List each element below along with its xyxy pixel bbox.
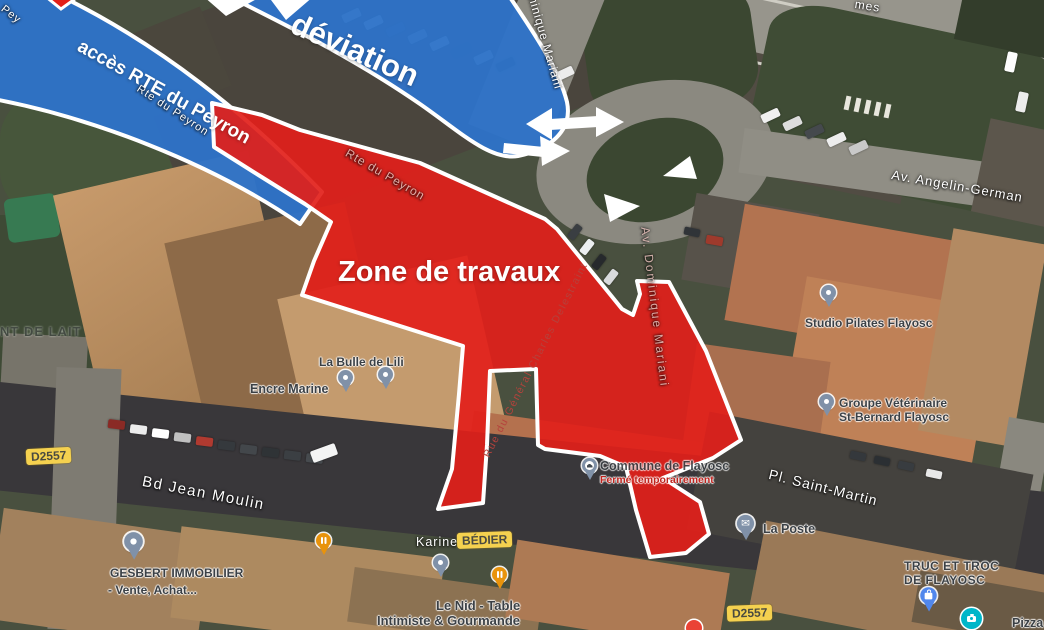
poi-pin-studio-pilates[interactable] xyxy=(821,285,836,300)
pin-dot-icon xyxy=(824,399,829,404)
envelope-icon: ✉ xyxy=(741,518,750,528)
poi-label-truc-et-troc-line2[interactable]: DE FLAYOSC xyxy=(904,573,985,587)
poi-label-le-nid-line1[interactable]: Le Nid - Table xyxy=(436,598,520,613)
poi-label-studio-pilates[interactable]: Studio Pilates Flayosc xyxy=(805,316,932,330)
poi-pin-la-bulle-de-lili[interactable] xyxy=(378,367,393,382)
road-shield-d2557-west: D2557 xyxy=(26,447,72,465)
poi-label-commune-de-flayosc[interactable]: Commune de Flayosc xyxy=(600,459,729,473)
roundabout-arrow-southwest xyxy=(663,156,697,179)
poi-pin-le-nid-restaurant[interactable] xyxy=(492,567,507,582)
poi-pin-la-poste[interactable]: ✉ xyxy=(737,515,754,532)
poi-pin-karine-bedier[interactable] xyxy=(433,555,448,570)
shopping-bag-icon xyxy=(925,592,933,599)
street-view-camera-icon[interactable] xyxy=(961,608,982,629)
poi-label-pizza-partial[interactable]: Pizza xyxy=(1012,616,1043,630)
poi-label-bedier-on-shield[interactable]: BÉDIER xyxy=(457,531,513,549)
camera-icon xyxy=(967,616,976,622)
fork-knife-icon xyxy=(497,571,499,578)
zone-de-travaux-label: Zone de travaux xyxy=(338,256,560,289)
fork-knife-icon xyxy=(321,537,323,544)
poi-label-gesbert-line1[interactable]: GESBERT IMMOBILIER xyxy=(110,566,243,580)
poi-label-groupe-veterinaire-line2[interactable]: St-Bernard Flayosc xyxy=(839,410,949,424)
poi-status-ferme-temporairement: Fermé temporairement xyxy=(600,474,714,486)
poi-pin-groupe-veterinaire[interactable] xyxy=(819,394,834,409)
poi-label-karine[interactable]: Karine xyxy=(416,535,458,549)
roundabout-arrow-right xyxy=(596,107,624,137)
pin-dot-icon xyxy=(343,375,348,380)
road-shield-d2557-south: D2557 xyxy=(727,604,773,622)
poi-label-encre-marine[interactable]: Encre Marine xyxy=(250,382,329,396)
town-hall-icon xyxy=(585,461,594,470)
pin-dot-icon xyxy=(438,560,443,565)
poi-label-gesbert-line2[interactable]: - Vente, Achat... xyxy=(108,583,197,597)
poi-pin-commune-de-flayosc[interactable] xyxy=(582,458,597,473)
poi-pin-gesbert[interactable] xyxy=(124,532,143,551)
area-label-nt-de-lait: NT DE LAIT xyxy=(0,324,82,339)
pin-dot-icon xyxy=(383,372,388,377)
roundabout-arrow-southeast xyxy=(604,194,640,222)
poi-pin-red-partial[interactable] xyxy=(686,620,702,630)
poi-pin-encre-marine[interactable] xyxy=(338,370,353,385)
poi-label-groupe-veterinaire-line1[interactable]: Groupe Vétérinaire xyxy=(839,396,947,410)
pin-dot-icon xyxy=(826,290,831,295)
pin-dot-icon xyxy=(130,538,136,544)
poi-pin-restaurant-west[interactable] xyxy=(316,533,331,548)
poi-label-la-poste[interactable]: La Poste xyxy=(763,522,815,536)
poi-pin-truc-et-troc[interactable] xyxy=(920,587,937,604)
poi-label-truc-et-troc-line1[interactable]: TRUC ET TROC xyxy=(904,559,999,573)
access-route-overlay xyxy=(0,0,322,224)
poi-label-le-nid-line2[interactable]: Intimiste & Gourmande xyxy=(377,613,520,628)
satellite-map[interactable]: Zone de travaux déviation accès RTE du P… xyxy=(0,0,1044,630)
